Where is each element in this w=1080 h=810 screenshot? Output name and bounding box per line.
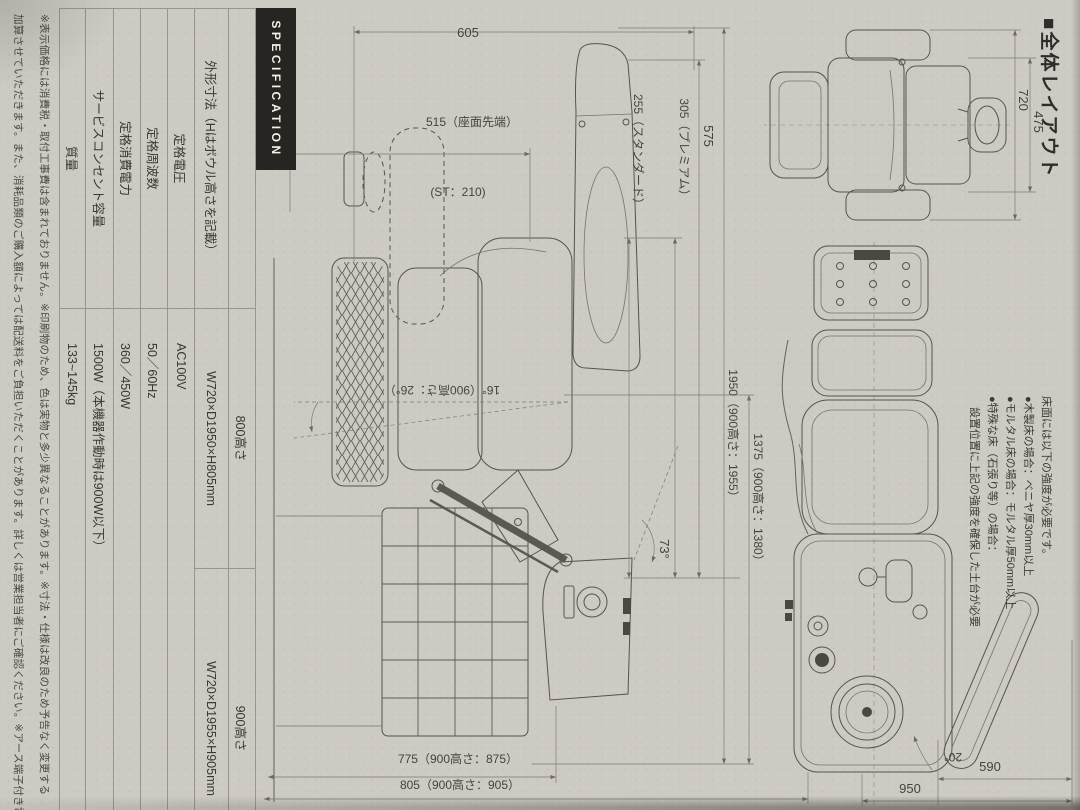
specification-header: SPECIFICATION [256, 8, 296, 170]
panel-buttons [837, 263, 910, 306]
spec-label: 定格消費電力 [114, 9, 141, 309]
angle-20-label: 20° [944, 750, 962, 764]
angle-73-label: 73° [657, 539, 672, 559]
floor-note-item: 設置位置に上記の強度を確保した土台が必要 [965, 396, 982, 627]
disclaimer-line-2: 加算させていただきます。また、消耗品類のご購入額によっては配送料をご負担いただく… [11, 14, 26, 810]
dim-305-label: 305（プレミアム） [677, 98, 691, 201]
floor-note-title: 床面には以下の強度が必要です。 [1037, 396, 1054, 627]
spec-value: 1500W（本機器作動時は900W以下） [86, 309, 114, 810]
seat-underbody [398, 268, 482, 470]
floor-strength-note: 床面には以下の強度が必要です。 ●木製床の場合：ベニヤ厚30mm以上 ●モルタル… [964, 396, 1054, 627]
spec-value: 50／60Hz [141, 309, 168, 810]
seatback-panel [812, 330, 932, 396]
spec-row-frequency: 定格周波数 50／60Hz [141, 9, 168, 810]
spec-label: 定格電圧 [168, 9, 195, 309]
disclaimer-line-1: ※表示価格には消費税・取付工事費は含まれておりません。※印刷物のため、色は実物と… [37, 14, 52, 810]
dim-805-label: 805（900高さ：905） [400, 777, 520, 792]
spec-col-900: 900高さ [229, 569, 256, 810]
technical-drawing: 475 720 [260, 0, 1080, 810]
figure-side-view [274, 44, 640, 802]
dim-255-label: 255（スタンダード） [631, 94, 646, 210]
floor-note-item: ●モルタル床の場合：モルタル厚50mm以上 [1001, 396, 1018, 627]
backrest-side [573, 44, 640, 371]
spec-label: 定格周波数 [141, 9, 168, 309]
panel-label-strip [854, 250, 890, 260]
footbox [543, 558, 632, 700]
spec-value-800: W720×D1950×H805mm [195, 309, 229, 569]
dim-515-label: 515（座面先端） [426, 114, 518, 129]
spec-row-power: 定格消費電力 360／450W [114, 9, 141, 810]
dim-1375-label: 1375（900高さ：1380） [751, 433, 766, 566]
dim-575-label: 575 [701, 125, 716, 147]
spec-row-weight: 質量 133~145kg [60, 9, 86, 810]
spec-row-outlet: サービスコンセント容量 1500W（本機器作動時は900W以下） [86, 9, 114, 810]
dim-605-label: 605 [457, 25, 479, 40]
dim-1950-label: 1950（900高さ：1955） [726, 369, 741, 502]
dims-base-view [862, 640, 1072, 806]
figure-chair-top-view [764, 30, 1010, 220]
spec-label: 外形寸法（Hはボウル高さを記載） [195, 9, 229, 309]
catalog-page-rotated: ■全体レイアウト [0, 0, 1080, 810]
spec-label: 質量 [60, 9, 86, 309]
dim-590-label: 590 [979, 759, 1001, 774]
dim-st210-label: (ST：210) [430, 185, 485, 199]
seat-section [802, 400, 938, 534]
spec-row-voltage: 定格電圧 AC100V [168, 9, 195, 810]
dim-775-label: 775（900高さ：875） [398, 751, 518, 766]
spec-row-dimensions: 外形寸法（Hはボウル高さを記載） W720×D1950×H805mm W720×… [195, 9, 229, 810]
photographed-catalog-page: ■全体レイアウト [0, 0, 1080, 810]
angle-16-label: 16°（900高さ：26°） [384, 383, 500, 398]
spec-header-empty [229, 9, 256, 309]
spec-value: 133~145kg [60, 309, 86, 810]
dim-950-label: 950 [899, 781, 921, 796]
floor-note-item: ●特殊な床（石張り等）の場合： [983, 396, 1000, 627]
spec-table: 800高さ 900高さ 外形寸法（Hはボウル高さを記載） W720×D1950×… [59, 8, 256, 810]
armrest-left [846, 30, 930, 60]
dim-720-label: 720 [1016, 89, 1031, 111]
faucet-block [886, 560, 912, 602]
seat-side [478, 238, 572, 470]
armrest-right [846, 190, 930, 220]
floor-note-item: ●木製床の場合：ベニヤ厚30mm以上 [1019, 396, 1036, 627]
spec-col-800: 800高さ [229, 309, 256, 569]
spec-value: 360／450W [114, 309, 141, 810]
spec-value-900: W720×D1955×H905mm [195, 569, 229, 810]
spec-label: サービスコンセント容量 [86, 9, 114, 309]
spec-header-row: 800高さ 900高さ [229, 9, 256, 810]
dim-475-label: 475 [1031, 111, 1046, 133]
spec-value: AC100V [168, 309, 195, 810]
